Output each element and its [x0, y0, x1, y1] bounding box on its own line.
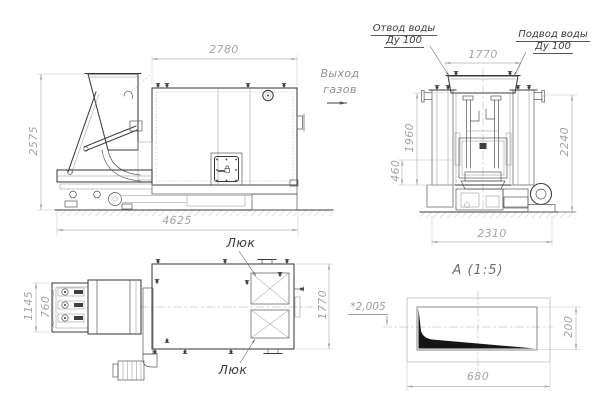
water-inlet-label: Подвод воды	[515, 30, 591, 42]
dim-detail-depth: *2,005	[348, 302, 388, 315]
gas-outlet-note-line1: Выход	[315, 68, 365, 80]
dim-total-height: 2575	[28, 119, 40, 163]
hatch-label-bottom: Люк	[215, 363, 251, 376]
dim-boiler-width: 2780	[202, 44, 246, 56]
dim-total-length: 4625	[155, 215, 199, 227]
dim-base-height: 460	[390, 149, 402, 193]
detail-a-title: А (1:5)	[446, 264, 510, 278]
water-outlet-label: Отвод воды	[366, 24, 442, 36]
dim-feeder-width: 1145	[23, 284, 35, 328]
dim-body-width: 1770	[317, 283, 329, 327]
end-view-drawing	[398, 46, 577, 246]
dim-foundation-width: 2310	[470, 228, 514, 240]
water-inlet-dn: Ду 100	[515, 42, 591, 54]
hatch-label-top: Люк	[223, 236, 259, 249]
dim-feeder-inner-width: 760	[40, 285, 52, 329]
drawing-linework	[0, 0, 600, 400]
plan-view-drawing	[33, 251, 333, 380]
dim-top-width: 1770	[461, 49, 505, 61]
dim-detail-height: 200	[563, 305, 575, 349]
water-outlet-dn: Ду 100	[366, 36, 442, 48]
dim-detail-length: 680	[456, 371, 500, 383]
gas-outlet-note-line2: газов	[315, 84, 365, 96]
dim-end-total-height: 2240	[559, 120, 571, 164]
technical-drawing-sheet: 2780 2575 4625 Выход газов Отвод воды Ду…	[0, 0, 600, 400]
dim-furnace-height: 1960	[404, 116, 416, 160]
side-view-drawing	[37, 55, 333, 236]
